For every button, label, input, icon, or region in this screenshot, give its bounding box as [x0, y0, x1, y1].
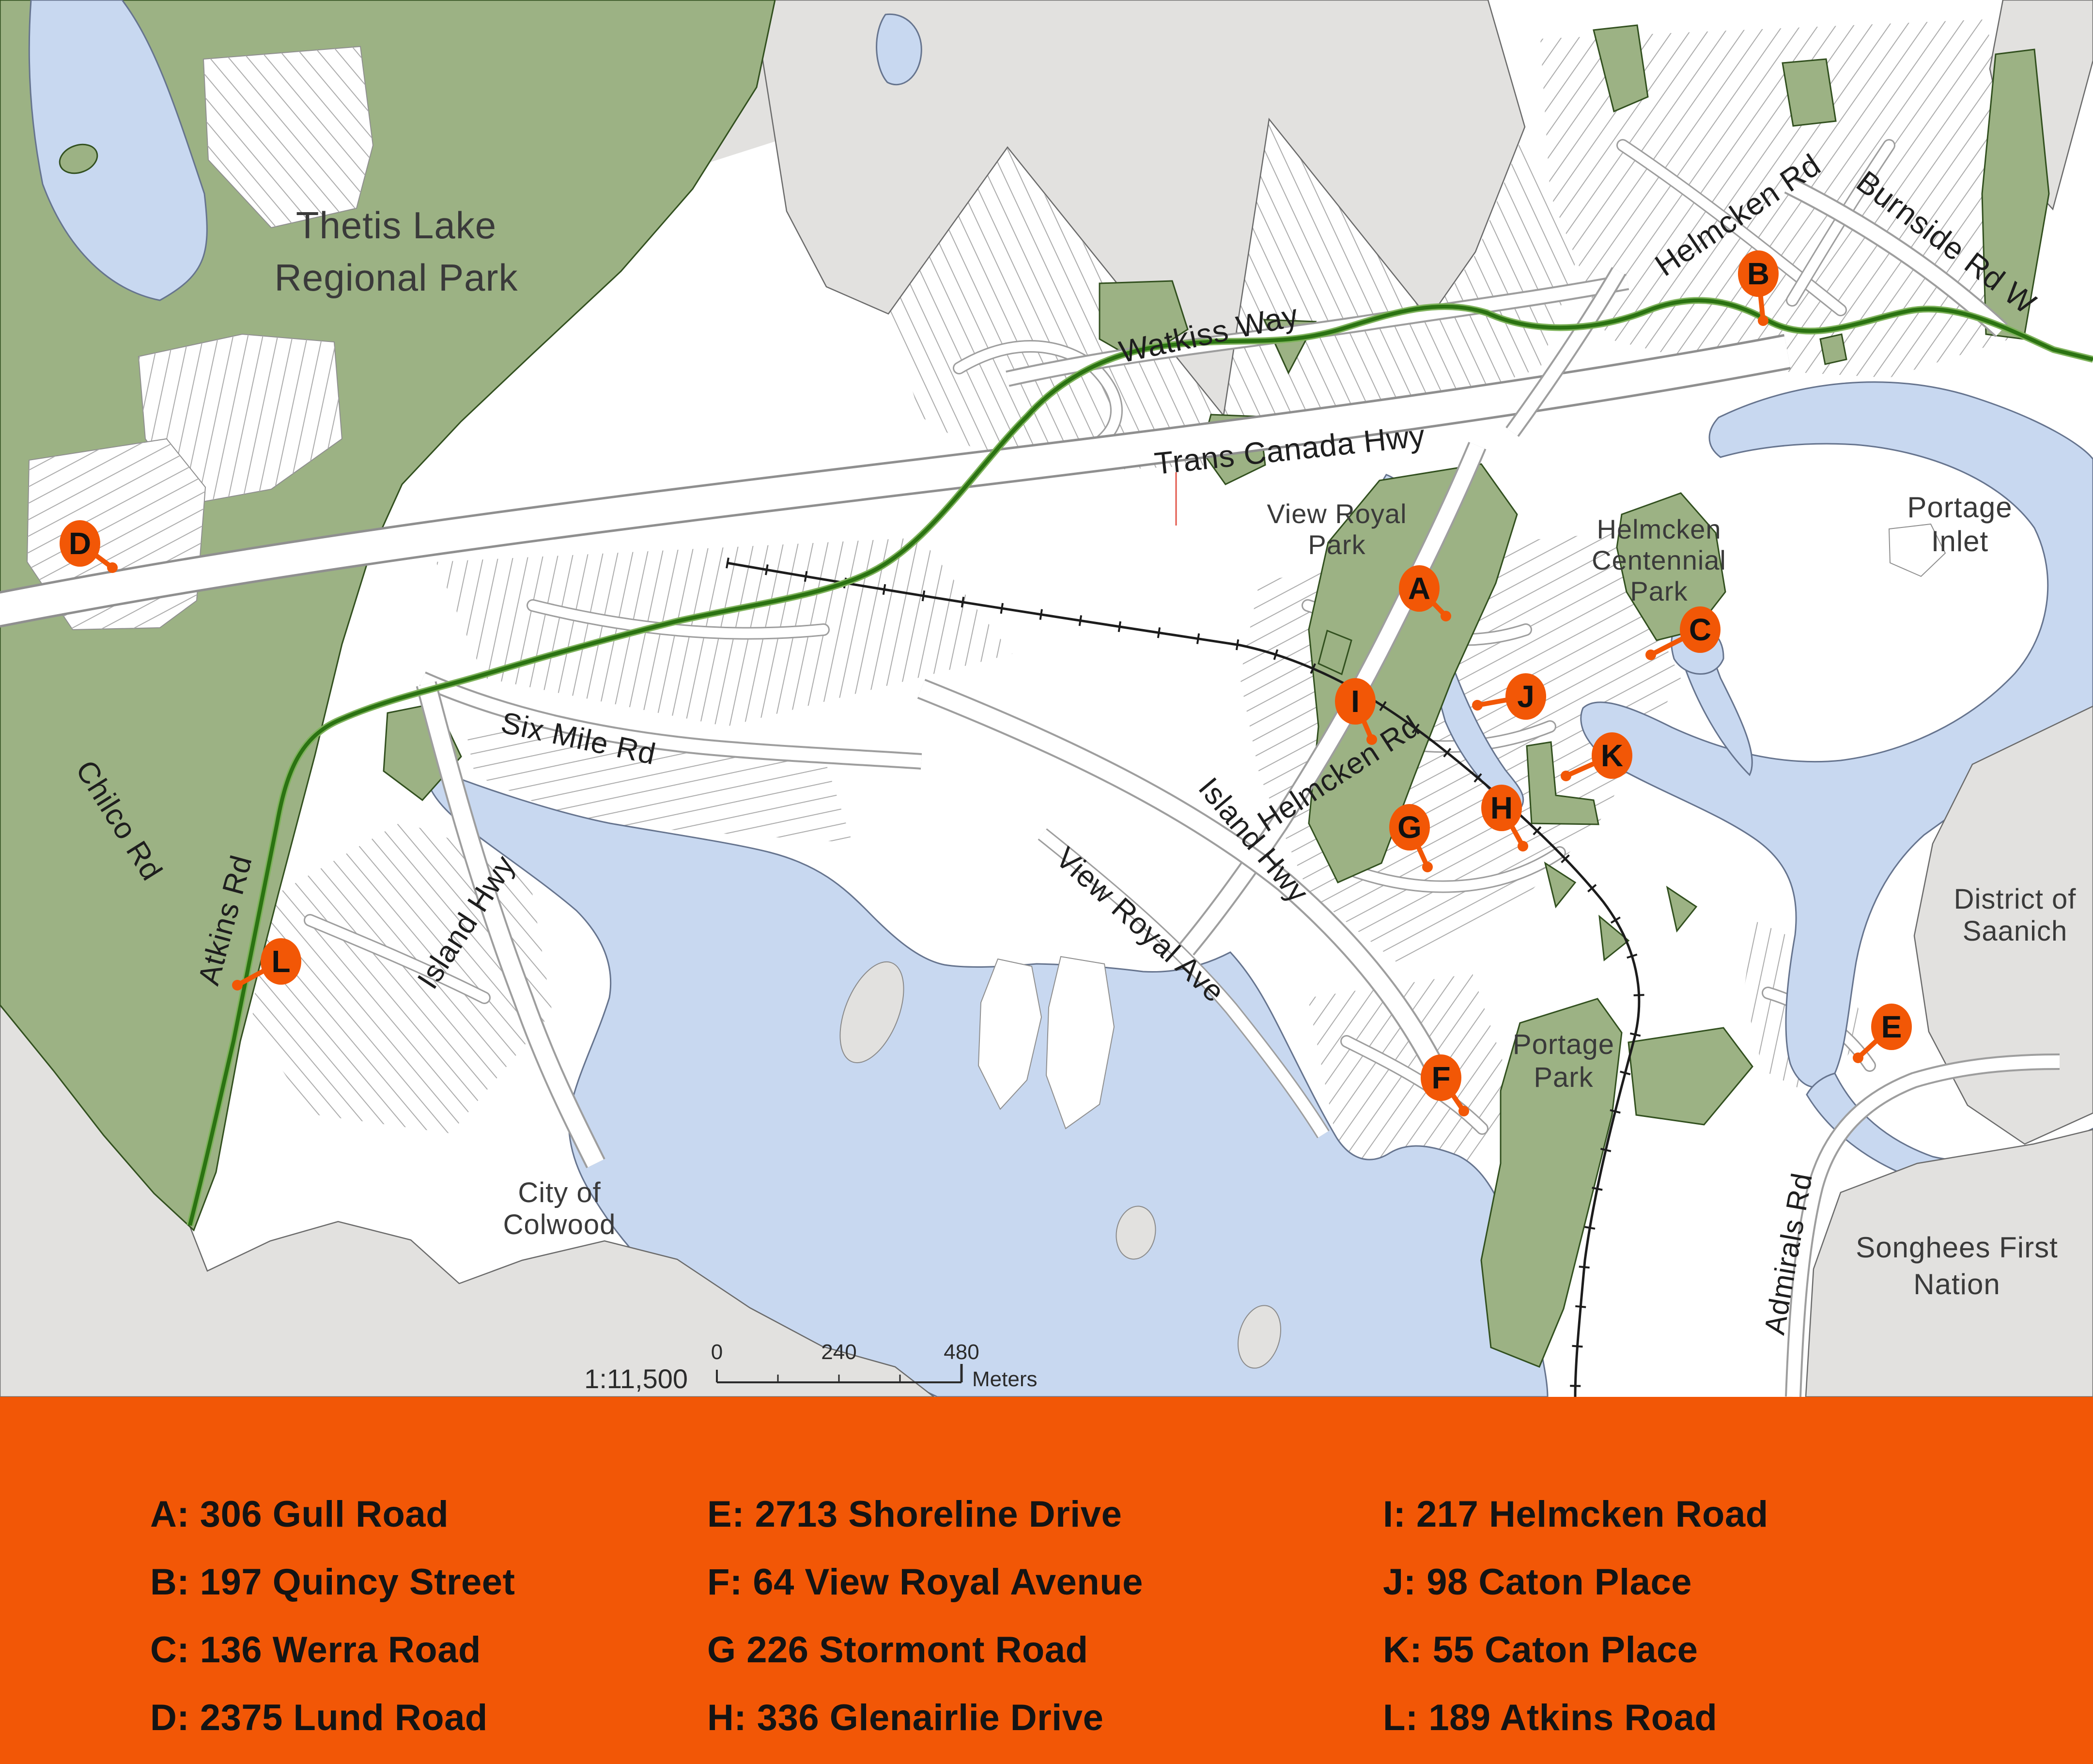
legend-entry-L: L: 189 Atkins Road	[1383, 1684, 1768, 1751]
scale-ratio-label: 1:11,500	[584, 1363, 688, 1394]
legend-entry-F: F: 64 View Royal Avenue	[707, 1548, 1143, 1616]
marker-letter-G: G	[1397, 810, 1422, 845]
map-canvas: 0240480Meters1:11,500 Thetis LakeRegiona…	[0, 0, 2093, 1397]
legend-entry-D: D: 2375 Lund Road	[150, 1684, 515, 1751]
marker-letter-K: K	[1601, 738, 1623, 773]
marker-letter-F: F	[1431, 1060, 1450, 1095]
legend-entry-C: C: 136 Werra Road	[150, 1616, 515, 1684]
marker-letter-H: H	[1490, 790, 1513, 825]
legend-entry-G: G 226 Stormont Road	[707, 1616, 1143, 1684]
area-label-city-of-colwood: City ofColwood	[503, 1177, 616, 1240]
scale-unit-label: Meters	[972, 1367, 1037, 1391]
map-figure: 0240480Meters1:11,500 Thetis LakeRegiona…	[0, 0, 2093, 1764]
legend-entry-J: J: 98 Caton Place	[1383, 1548, 1768, 1616]
marker-letter-J: J	[1517, 679, 1535, 714]
area-label-district-of-saanich: District ofSaanich	[1954, 883, 2077, 947]
legend-band: A: 306 Gull RoadB: 197 Quincy StreetC: 1…	[0, 1397, 2093, 1764]
marker-letter-D: D	[69, 526, 91, 561]
legend-entry-B: B: 197 Quincy Street	[150, 1548, 515, 1616]
legend-entry-H: H: 336 Glenairlie Drive	[707, 1684, 1143, 1751]
scale-tick-label: 240	[821, 1340, 856, 1364]
marker-letter-C: C	[1689, 612, 1711, 647]
legend-column-3: I: 217 Helmcken RoadJ: 98 Caton PlaceK: …	[1383, 1480, 1768, 1751]
marker-letter-E: E	[1881, 1009, 1902, 1044]
legend-entry-E: E: 2713 Shoreline Drive	[707, 1480, 1143, 1548]
marker-letter-L: L	[271, 944, 290, 979]
scale-tick-label: 480	[944, 1340, 979, 1364]
legend-column-1: A: 306 Gull RoadB: 197 Quincy StreetC: 1…	[150, 1480, 515, 1751]
legend-entry-I: I: 217 Helmcken Road	[1383, 1480, 1768, 1548]
legend-entry-K: K: 55 Caton Place	[1383, 1616, 1768, 1684]
legend-column-2: E: 2713 Shoreline DriveF: 64 View Royal …	[707, 1480, 1143, 1751]
legend-entry-A: A: 306 Gull Road	[150, 1480, 515, 1548]
marker-letter-B: B	[1747, 256, 1769, 291]
scale-tick-label: 0	[711, 1340, 723, 1364]
marker-letter-I: I	[1351, 684, 1360, 719]
marker-letter-A: A	[1408, 571, 1430, 606]
